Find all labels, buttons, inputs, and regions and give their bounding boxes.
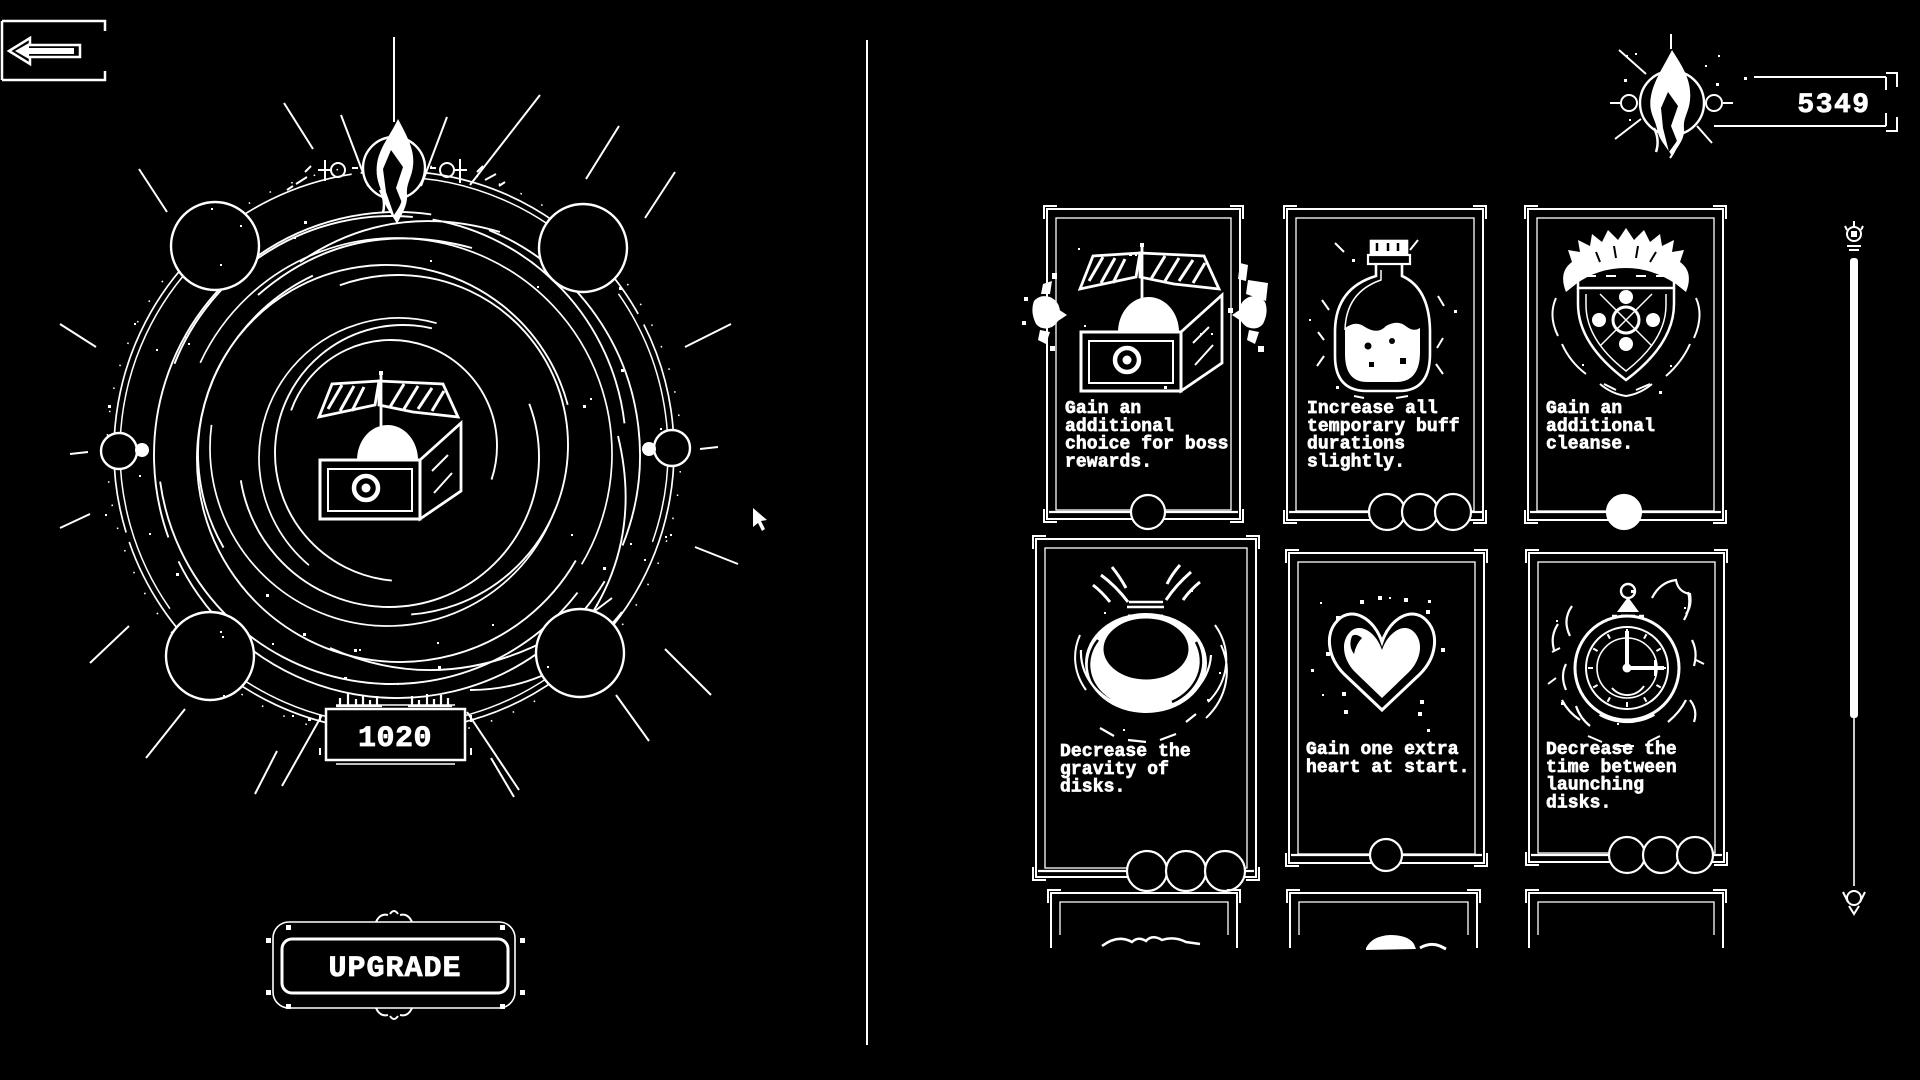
svg-text:UPGRADE: UPGRADE [328, 952, 461, 986]
svg-text:5349: 5349 [1797, 90, 1870, 121]
svg-text:Gain one extraheart at start.: Gain one extraheart at start. [1306, 740, 1470, 778]
svg-text:1020: 1020 [358, 722, 432, 756]
